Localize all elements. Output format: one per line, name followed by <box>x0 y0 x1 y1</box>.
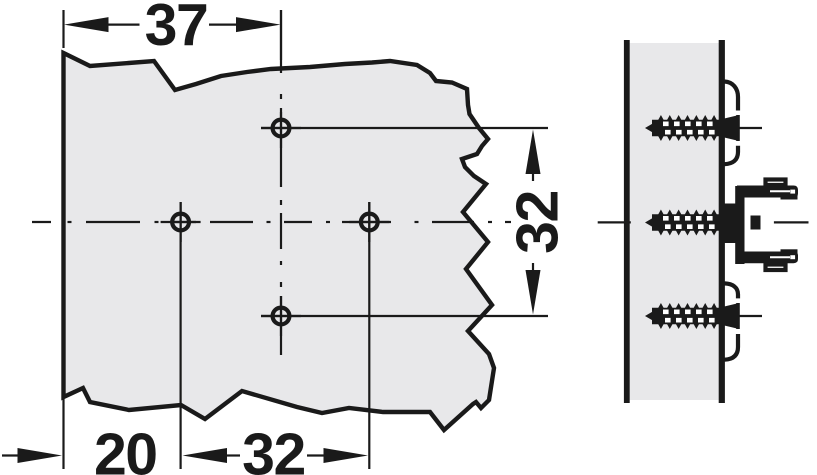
svg-text:32: 32 <box>505 191 571 254</box>
svg-text:32: 32 <box>242 422 305 475</box>
svg-text:20: 20 <box>94 422 157 475</box>
svg-text:37: 37 <box>145 0 208 58</box>
